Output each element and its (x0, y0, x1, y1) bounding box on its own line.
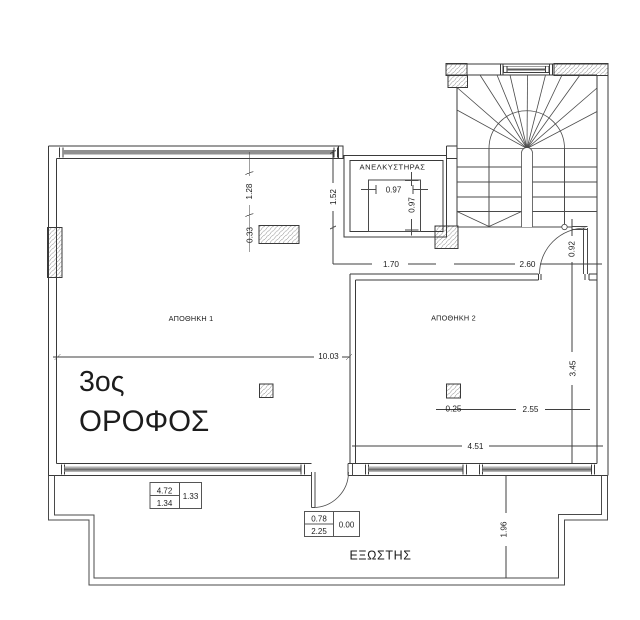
svg-text:1.33: 1.33 (183, 492, 199, 501)
svg-text:10.03: 10.03 (318, 352, 339, 361)
svg-text:4.72: 4.72 (157, 487, 173, 496)
svg-text:1.70: 1.70 (383, 260, 399, 269)
svg-text:2.25: 2.25 (311, 527, 327, 536)
svg-text:ΑΝΕΛΚΥΣΤΗΡΑΣ: ΑΝΕΛΚΥΣΤΗΡΑΣ (360, 163, 426, 172)
svg-text:0.78: 0.78 (311, 515, 327, 524)
svg-text:ΑΠΟΘΗΚΗ 1: ΑΠΟΘΗΚΗ 1 (169, 314, 214, 323)
svg-text:ΟΡΟΦΟΣ: ΟΡΟΦΟΣ (79, 405, 209, 438)
svg-text:1.34: 1.34 (157, 499, 173, 508)
svg-text:3ος: 3ος (79, 366, 124, 398)
svg-text:0.97: 0.97 (386, 186, 402, 195)
svg-text:0.33: 0.33 (245, 227, 254, 243)
svg-text:0.92: 0.92 (568, 241, 577, 257)
svg-text:ΕΞΩΣΤΗΣ: ΕΞΩΣΤΗΣ (349, 549, 411, 563)
svg-text:1.28: 1.28 (245, 183, 254, 199)
svg-text:0.25: 0.25 (446, 405, 462, 414)
svg-text:0.00: 0.00 (339, 521, 355, 530)
svg-text:1.52: 1.52 (329, 189, 338, 205)
svg-text:0.97: 0.97 (408, 197, 417, 213)
svg-text:2.60: 2.60 (520, 260, 536, 269)
svg-text:4.51: 4.51 (468, 442, 484, 451)
svg-text:1.96: 1.96 (500, 521, 509, 537)
svg-text:ΑΠΟΘΗΚΗ 2: ΑΠΟΘΗΚΗ 2 (431, 314, 476, 323)
svg-text:2.55: 2.55 (523, 405, 539, 414)
svg-text:3.45: 3.45 (569, 360, 578, 376)
